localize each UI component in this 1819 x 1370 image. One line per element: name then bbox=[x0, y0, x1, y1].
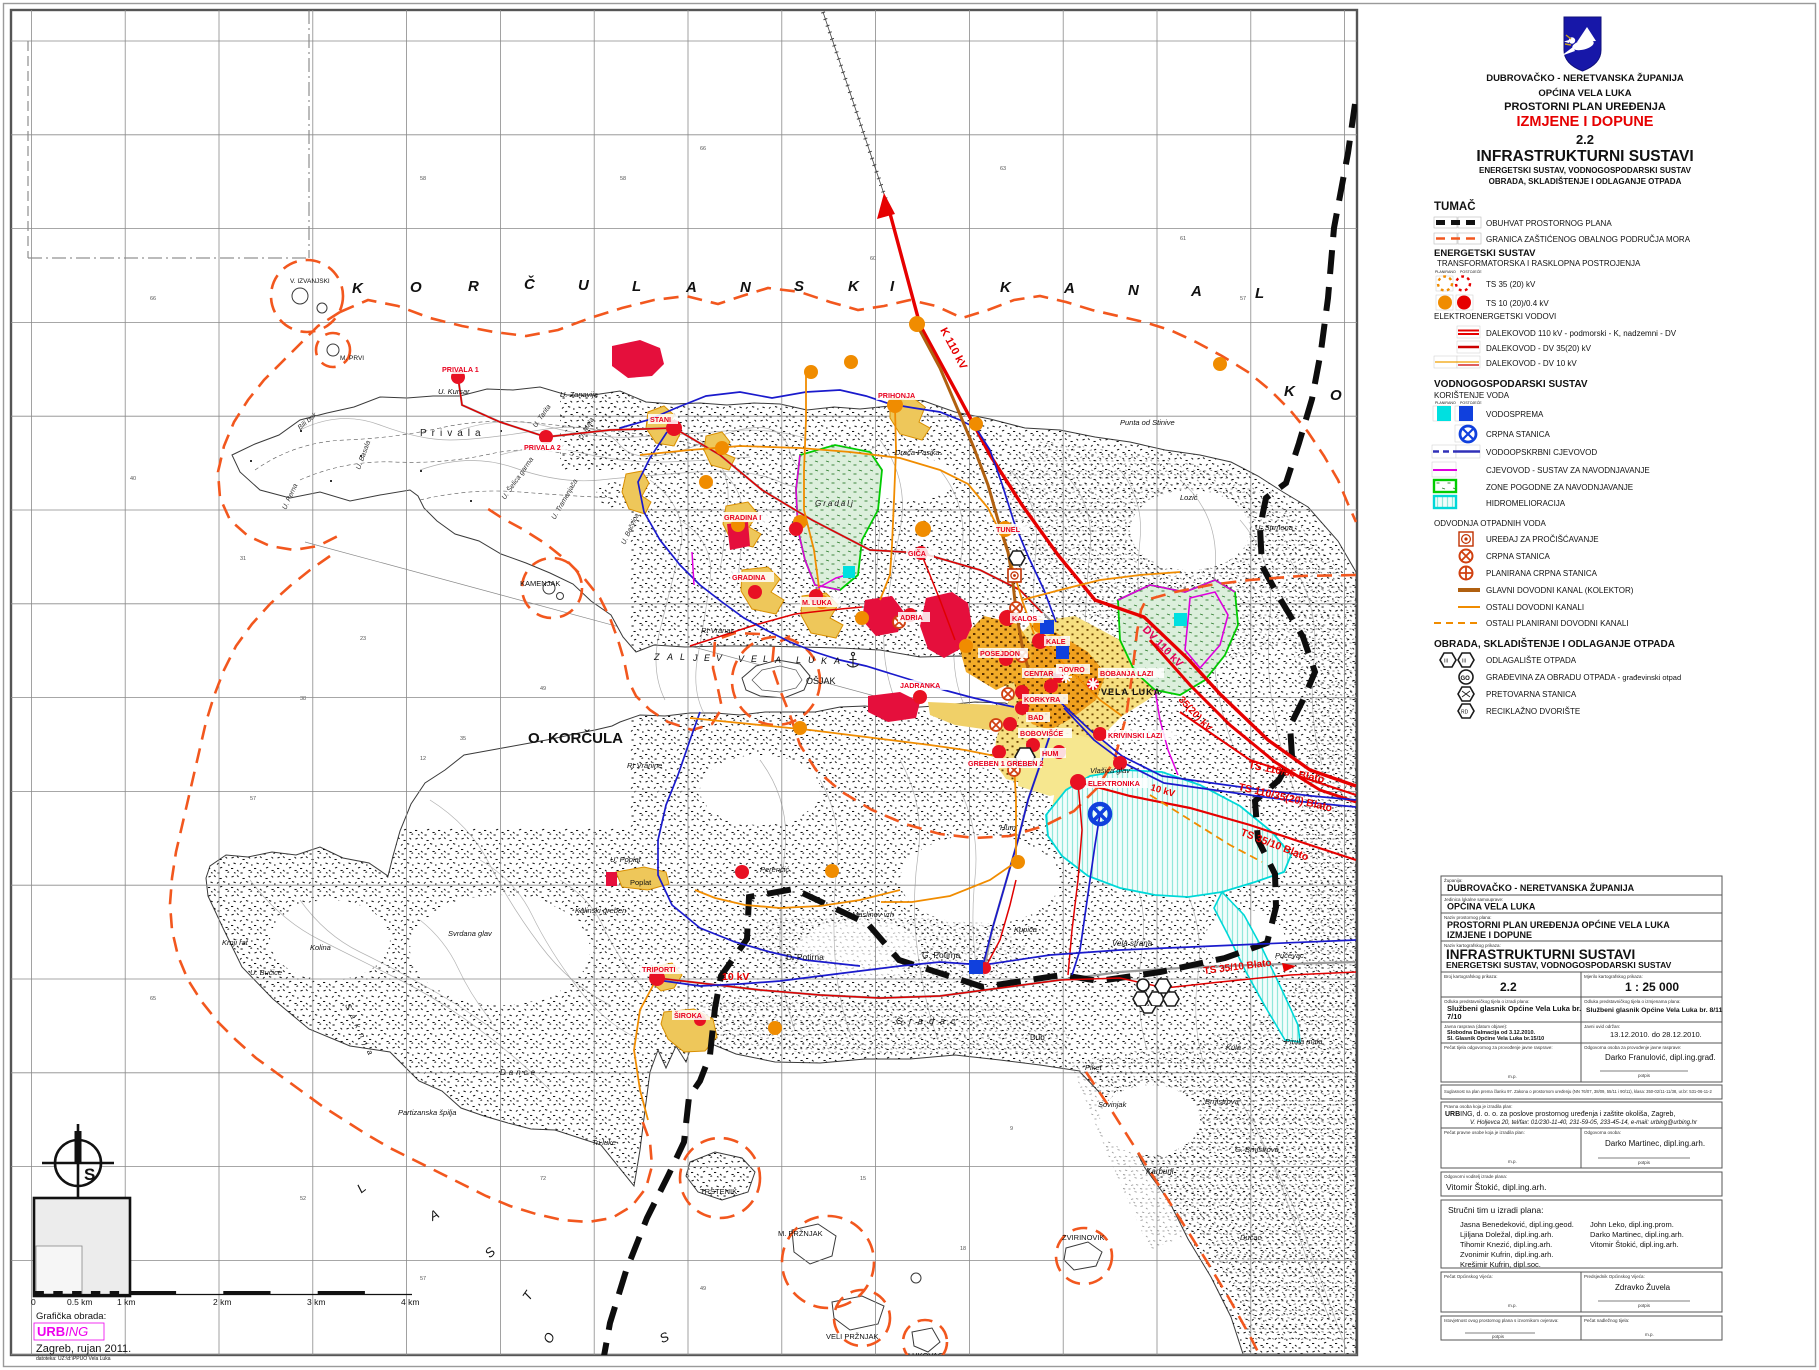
svg-text:A: A bbox=[666, 652, 673, 662]
svg-text:UREĐAJ ZA PROČIŠĆAVANJE: UREĐAJ ZA PROČIŠĆAVANJE bbox=[1486, 535, 1599, 544]
svg-text:m.p.: m.p. bbox=[1508, 1303, 1517, 1308]
svg-text:L: L bbox=[680, 652, 685, 662]
svg-text:Kolina: Kolina bbox=[310, 943, 331, 952]
svg-text:PLANIRANO: PLANIRANO bbox=[1435, 401, 1456, 405]
svg-text:Istovjetnost ovog prostornog p: Istovjetnost ovog prostornog plana s izv… bbox=[1444, 1318, 1559, 1323]
svg-text:BAD: BAD bbox=[1028, 713, 1044, 722]
svg-text:ELEKTRONIKA: ELEKTRONIKA bbox=[1088, 779, 1140, 788]
svg-text:HIDROMELIORACIJA: HIDROMELIORACIJA bbox=[1486, 499, 1566, 508]
svg-text:PLANIRANA CRPNA STANICA: PLANIRANA CRPNA STANICA bbox=[1486, 569, 1598, 578]
svg-text:Zvonimir Kufrin, dipl.ing.arh.: Zvonimir Kufrin, dipl.ing.arh. bbox=[1460, 1250, 1553, 1259]
svg-text:PRIVALA 2: PRIVALA 2 bbox=[524, 443, 561, 452]
svg-text:A: A bbox=[685, 279, 697, 296]
svg-text:Kula: Kula bbox=[1226, 1043, 1241, 1052]
svg-text:III: III bbox=[1462, 659, 1466, 665]
svg-text:TS 10 (20)/0.4 kV: TS 10 (20)/0.4 kV bbox=[1486, 299, 1549, 308]
svg-text:ENERGETSKI SUSTAV, VODNOGOSPOD: ENERGETSKI SUSTAV, VODNOGOSPODARSKI SUST… bbox=[1446, 960, 1672, 970]
svg-text:ELEKTROENERGETSKI VODOVI: ELEKTROENERGETSKI VODOVI bbox=[1434, 312, 1556, 321]
svg-text:0.5 km: 0.5 km bbox=[67, 1297, 93, 1307]
svg-text:66: 66 bbox=[700, 146, 706, 152]
svg-text:ZVIRINOVIK: ZVIRINOVIK bbox=[1062, 1233, 1105, 1242]
svg-text:ZONE POGODNE ZA NAVODNJAVANJE: ZONE POGODNE ZA NAVODNJAVANJE bbox=[1486, 483, 1633, 492]
svg-text:G. Brnistrova: G. Brnistrova bbox=[1235, 1145, 1279, 1154]
svg-text:OPĆINA VELA LUKA: OPĆINA VELA LUKA bbox=[1538, 87, 1631, 99]
svg-text:Dučac: Dučac bbox=[1240, 1233, 1262, 1242]
svg-text:VELI PRŽNJAK: VELI PRŽNJAK bbox=[826, 1332, 879, 1341]
svg-text:KAMENJAK: KAMENJAK bbox=[520, 579, 560, 588]
svg-text:9: 9 bbox=[1010, 1126, 1013, 1132]
svg-text:DALEKOVOD - DV 35(20) kV: DALEKOVOD - DV 35(20) kV bbox=[1486, 344, 1592, 353]
svg-text:PRIVALA 1: PRIVALA 1 bbox=[442, 365, 479, 374]
svg-text:49: 49 bbox=[540, 686, 546, 692]
svg-text:Dub: Dub bbox=[1030, 1033, 1045, 1042]
svg-text:ENERGETSKI SUSTAV: ENERGETSKI SUSTAV bbox=[1434, 248, 1536, 259]
svg-text:OBRADA, SKLADIŠTENJE I ODLAGAN: OBRADA, SKLADIŠTENJE I ODLAGANJE OTPADA bbox=[1434, 637, 1675, 650]
svg-text:N: N bbox=[1128, 282, 1140, 299]
svg-text:ODVODNJA OTPADNIH VODA: ODVODNJA OTPADNIH VODA bbox=[1434, 519, 1547, 528]
svg-text:PRETOVARNA STANICA: PRETOVARNA STANICA bbox=[1486, 690, 1577, 699]
svg-text:Pučevac: Pučevac bbox=[1275, 951, 1304, 960]
svg-text:U. Kursar: U. Kursar bbox=[438, 387, 470, 396]
svg-text:Odluka predstavničkog tijela o: Odluka predstavničkog tijela o izmjenama… bbox=[1584, 999, 1681, 1004]
svg-text:TRSTENIK: TRSTENIK bbox=[700, 1187, 737, 1196]
svg-text:IZMJENE I DOPUNE: IZMJENE I DOPUNE bbox=[1447, 930, 1532, 940]
svg-text:Sl. Glasnik Općine Vela Luka b: Sl. Glasnik Općine Vela Luka br.15/10 bbox=[1447, 1036, 1544, 1042]
svg-text:PROSTORNI PLAN UREĐENJA OPĆINE: PROSTORNI PLAN UREĐENJA OPĆINE VELA LUKA bbox=[1447, 919, 1670, 930]
svg-text:CJEVOVOD - SUSTAV ZA NAVODNJAV: CJEVOVOD - SUSTAV ZA NAVODNJAVANJE bbox=[1486, 466, 1650, 475]
svg-text:KORKYRA: KORKYRA bbox=[1024, 695, 1060, 704]
svg-text:R: R bbox=[468, 278, 479, 295]
svg-text:Rt Vranine: Rt Vranine bbox=[627, 761, 662, 770]
svg-text:potpis: potpis bbox=[1492, 1334, 1505, 1339]
svg-text:Hum: Hum bbox=[1000, 823, 1016, 832]
svg-text:Rt Vranac: Rt Vranac bbox=[701, 626, 734, 635]
svg-text:INFRASTRUKTURNI SUSTAVI: INFRASTRUKTURNI SUSTAVI bbox=[1476, 148, 1693, 165]
svg-text:Krešimir Kufrin, dipl.soc.: Krešimir Kufrin, dipl.soc. bbox=[1460, 1260, 1541, 1269]
svg-text:HUM: HUM bbox=[1042, 749, 1058, 758]
svg-text:7/10: 7/10 bbox=[1447, 1012, 1462, 1021]
svg-text:U: U bbox=[578, 277, 590, 294]
svg-text:A: A bbox=[1063, 280, 1075, 297]
svg-text:Javni uvid održan:: Javni uvid održan: bbox=[1584, 1024, 1620, 1029]
svg-text:1 : 25 000: 1 : 25 000 bbox=[1625, 980, 1679, 994]
svg-text:OSTALI PLANIRANI DOVODNI KANAL: OSTALI PLANIRANI DOVODNI KANALI bbox=[1486, 619, 1629, 628]
svg-text:Kupica: Kupica bbox=[1014, 925, 1037, 934]
svg-text:13.12.2010. do 28.12.2010.: 13.12.2010. do 28.12.2010. bbox=[1610, 1030, 1702, 1039]
svg-text:DALEKOVOD - DV 10 kV: DALEKOVOD - DV 10 kV bbox=[1486, 359, 1577, 368]
svg-text:72: 72 bbox=[540, 1176, 546, 1182]
svg-text:DALEKOVOD 110 kV - podmorski -: DALEKOVOD 110 kV - podmorski - K, nadzem… bbox=[1486, 329, 1677, 338]
svg-text:57: 57 bbox=[250, 796, 256, 802]
svg-text:ŠIROKA: ŠIROKA bbox=[674, 1011, 702, 1020]
svg-text:12: 12 bbox=[420, 756, 426, 762]
svg-text:ODLAGALIŠTE OTPADA: ODLAGALIŠTE OTPADA bbox=[1486, 656, 1577, 665]
svg-text:63: 63 bbox=[1000, 166, 1006, 172]
svg-text:RD: RD bbox=[1461, 710, 1469, 716]
svg-text:POSTOJEĆE: POSTOJEĆE bbox=[1460, 269, 1482, 274]
svg-text:4 km: 4 km bbox=[401, 1297, 419, 1307]
svg-text:0: 0 bbox=[31, 1297, 36, 1307]
svg-text:15: 15 bbox=[860, 1176, 866, 1182]
svg-text:L: L bbox=[1255, 285, 1264, 302]
svg-text:V. Holjevca 20, tel/fax: 01/23: V. Holjevca 20, tel/fax: 01/230-11-40, 2… bbox=[1470, 1120, 1698, 1126]
svg-text:Drača Pasika: Drača Pasika bbox=[895, 448, 940, 457]
svg-text:Tihomir Knezić, dipl.ing.arh.: Tihomir Knezić, dipl.ing.arh. bbox=[1460, 1240, 1552, 1249]
svg-text:JADRANKA: JADRANKA bbox=[900, 681, 940, 690]
svg-text:OBRADA, SKLADIŠTENJE I ODLAGAN: OBRADA, SKLADIŠTENJE I ODLAGANJE OTPADA bbox=[1489, 177, 1682, 186]
svg-text:Vlašica glav: Vlašica glav bbox=[1090, 766, 1131, 775]
svg-text:VODNOGOSPODARSKI SUSTAV: VODNOGOSPODARSKI SUSTAV bbox=[1434, 379, 1588, 390]
svg-text:m.p.: m.p. bbox=[1508, 1074, 1517, 1079]
svg-text:Ljiljana Doležal, dipl.ing.arh: Ljiljana Doležal, dipl.ing.arh. bbox=[1460, 1230, 1553, 1239]
svg-text:57: 57 bbox=[420, 1276, 426, 1282]
svg-text:Sovinjak: Sovinjak bbox=[1098, 1100, 1128, 1109]
svg-text:BOBANJA LAZI: BOBANJA LAZI bbox=[1100, 669, 1153, 678]
svg-text:O. KORČULA: O. KORČULA bbox=[528, 729, 623, 747]
svg-text:Karbuni: Karbuni bbox=[1146, 1167, 1174, 1176]
svg-text:A: A bbox=[774, 655, 781, 665]
svg-text:57: 57 bbox=[1240, 296, 1246, 302]
svg-text:Odgovorna osoba za provođenje: Odgovorna osoba za provođenje javne rasp… bbox=[1584, 1045, 1681, 1050]
svg-text:L: L bbox=[796, 655, 801, 665]
svg-text:IZMJENE I DOPUNE: IZMJENE I DOPUNE bbox=[1517, 114, 1654, 130]
svg-text:Pravna osoba koja je izradila: Pravna osoba koja je izradila plan: bbox=[1444, 1104, 1513, 1109]
svg-text:23: 23 bbox=[360, 636, 366, 642]
svg-text:GREBEN 1 GREBEN 2: GREBEN 1 GREBEN 2 bbox=[968, 759, 1044, 768]
svg-text:OBUHVAT PROSTORNOG PLANA: OBUHVAT PROSTORNOG PLANA bbox=[1486, 219, 1612, 228]
svg-text:35: 35 bbox=[460, 736, 466, 742]
svg-text:Vitomir Štokić, dipl.ing.arh.: Vitomir Štokić, dipl.ing.arh. bbox=[1446, 1182, 1546, 1192]
svg-text:L: L bbox=[763, 654, 768, 664]
svg-text:M. PRŽNJAK: M. PRŽNJAK bbox=[778, 1229, 823, 1238]
svg-text:Gradalj: Gradalj bbox=[815, 499, 855, 508]
svg-text:U. Strmena: U. Strmena bbox=[1255, 523, 1293, 532]
svg-text:Punta od Stinive: Punta od Stinive bbox=[1120, 418, 1175, 427]
svg-text:STANI: STANI bbox=[650, 415, 671, 424]
svg-text:Lozić: Lozić bbox=[1180, 493, 1198, 502]
svg-text:m.p.: m.p. bbox=[1508, 1159, 1517, 1164]
svg-text:58: 58 bbox=[420, 176, 426, 182]
svg-text:49: 49 bbox=[700, 1286, 706, 1292]
svg-text:Dance: Dance bbox=[500, 1068, 538, 1077]
svg-text:GRANICA ZAŠTIĆENOG OBALNOG POD: GRANICA ZAŠTIĆENOG OBALNOG PODRUČJA MORA bbox=[1486, 235, 1691, 244]
svg-text:31: 31 bbox=[240, 556, 246, 562]
svg-text:J: J bbox=[692, 653, 698, 663]
svg-text:Č: Č bbox=[524, 275, 536, 293]
svg-text:Darko Franulović, dipl.ing.gra: Darko Franulović, dipl.ing.građ. bbox=[1605, 1053, 1716, 1062]
svg-text:K: K bbox=[821, 656, 828, 666]
svg-text:66: 66 bbox=[150, 296, 156, 302]
svg-text:PRIHONJA: PRIHONJA bbox=[878, 391, 915, 400]
svg-text:3 km: 3 km bbox=[307, 1297, 325, 1307]
svg-text:N: N bbox=[740, 279, 752, 296]
svg-text:Poplat: Poplat bbox=[630, 878, 652, 887]
svg-text:U. Zanavija: U. Zanavija bbox=[560, 390, 598, 399]
svg-text:PROSTORNI PLAN UREĐENJA: PROSTORNI PLAN UREĐENJA bbox=[1504, 101, 1666, 113]
svg-text:KRIVINSKI LAZI: KRIVINSKI LAZI bbox=[1108, 731, 1162, 740]
svg-text:III: III bbox=[1444, 659, 1448, 665]
svg-text:CRPNA STANICA: CRPNA STANICA bbox=[1486, 552, 1551, 561]
svg-text:D. Potirna: D. Potirna bbox=[786, 952, 824, 962]
svg-text:Krnji rat: Krnji rat bbox=[222, 938, 249, 947]
svg-text:M. PRVI: M. PRVI bbox=[340, 355, 364, 362]
svg-text:URBING, d. o. o. za poslove pr: URBING, d. o. o. za poslove prostornog u… bbox=[1445, 1111, 1675, 1118]
svg-text:Svrdana glav: Svrdana glav bbox=[448, 929, 493, 938]
svg-text:DUBROVAČKO - NERETVANSKA ŽUPAN: DUBROVAČKO - NERETVANSKA ŽUPANIJA bbox=[1486, 72, 1684, 84]
svg-text:Brnistrova: Brnistrova bbox=[1205, 1097, 1239, 1106]
svg-text:POSTOJEĆE: POSTOJEĆE bbox=[1460, 400, 1482, 405]
svg-text:10 kV: 10 kV bbox=[722, 971, 749, 983]
svg-text:potpis: potpis bbox=[1638, 1073, 1651, 1078]
svg-text:A: A bbox=[1190, 283, 1202, 300]
svg-text:Broj kartografskog prikaza:: Broj kartografskog prikaza: bbox=[1444, 974, 1498, 979]
svg-text:A: A bbox=[833, 656, 840, 666]
svg-text:OSTALI DOVODNI KANALI: OSTALI DOVODNI KANALI bbox=[1486, 603, 1584, 612]
svg-text:John Leko, dipl.ing.prom.: John Leko, dipl.ing.prom. bbox=[1590, 1220, 1674, 1229]
svg-text:M. LUKA: M. LUKA bbox=[802, 598, 832, 607]
svg-text:K: K bbox=[1284, 383, 1296, 400]
svg-text:18: 18 bbox=[960, 1246, 966, 1252]
svg-text:OPĆINA VELA LUKA: OPĆINA VELA LUKA bbox=[1447, 901, 1536, 912]
svg-text:GOVRO: GOVRO bbox=[1058, 665, 1085, 674]
svg-text:Gradac: Gradac bbox=[896, 1016, 962, 1026]
svg-text:Županija:: Županija: bbox=[1444, 876, 1463, 883]
svg-text:TUNEL: TUNEL bbox=[996, 525, 1021, 534]
svg-text:Mjerilo kartografskog prikaza:: Mjerilo kartografskog prikaza: bbox=[1584, 974, 1643, 979]
svg-text:E: E bbox=[751, 654, 758, 664]
svg-text:K: K bbox=[848, 278, 860, 295]
svg-text:61: 61 bbox=[1180, 236, 1186, 242]
svg-text:ENERGETSKI SUSTAV, VODNOGOSPOD: ENERGETSKI SUSTAV, VODNOGOSPODARSKI SUST… bbox=[1479, 166, 1692, 175]
svg-text:GO: GO bbox=[1461, 676, 1471, 682]
svg-text:PLANIRANO: PLANIRANO bbox=[1435, 270, 1456, 274]
svg-text:58: 58 bbox=[620, 176, 626, 182]
svg-text:TRIPORTI: TRIPORTI bbox=[642, 965, 676, 974]
svg-text:BOBOVIŠĆE: BOBOVIŠĆE bbox=[1020, 729, 1063, 738]
svg-text:Službeni glasnik Općine Vela L: Službeni glasnik Općine Vela Luka br. 8/… bbox=[1586, 1007, 1723, 1014]
svg-text:KALOS: KALOS bbox=[1012, 614, 1037, 623]
svg-text:Pečat Općinskog Vijeća:: Pečat Općinskog Vijeća: bbox=[1444, 1274, 1493, 1279]
svg-text:potpis: potpis bbox=[1638, 1303, 1651, 1308]
svg-text:Odgovorni voditelj izrade plan: Odgovorni voditelj izrade plana: bbox=[1444, 1174, 1507, 1179]
svg-text:Grafička obrada:: Grafička obrada: bbox=[36, 1311, 106, 1322]
svg-text:Vitomir Štokić, dipl.ing.arh.: Vitomir Štokić, dipl.ing.arh. bbox=[1590, 1240, 1679, 1249]
svg-text:URBING: URBING bbox=[37, 1324, 88, 1339]
svg-text:U: U bbox=[808, 655, 815, 665]
svg-text:Kalinski greben: Kalinski greben bbox=[575, 906, 626, 915]
svg-text:RECIKLAŽNO DVORIŠTE: RECIKLAŽNO DVORIŠTE bbox=[1486, 707, 1580, 716]
svg-text:Perenčić: Perenčić bbox=[760, 865, 789, 874]
svg-text:Službeni glasnik Općine Vela L: Službeni glasnik Općine Vela Luka br. bbox=[1447, 1004, 1581, 1013]
svg-text:VODOOPSKRBNI CJEVOVOD: VODOOPSKRBNI CJEVOVOD bbox=[1486, 448, 1597, 457]
svg-text:1 km: 1 km bbox=[117, 1297, 135, 1307]
svg-text:V: V bbox=[716, 653, 723, 663]
svg-text:Predsjednik Općinskog Vijeća:: Predsjednik Općinskog Vijeća: bbox=[1584, 1274, 1645, 1279]
svg-text:Vela strana: Vela strana bbox=[1112, 939, 1153, 948]
svg-text:VELA LUKA: VELA LUKA bbox=[1101, 687, 1161, 697]
svg-text:Pirula mala: Pirula mala bbox=[1285, 1037, 1323, 1046]
svg-text:ADRIA: ADRIA bbox=[900, 613, 923, 622]
svg-text:GRADINA I: GRADINA I bbox=[724, 513, 761, 522]
svg-text:2 km: 2 km bbox=[213, 1297, 231, 1307]
svg-text:Privala: Privala bbox=[420, 428, 486, 439]
svg-text:CRPNA STANICA: CRPNA STANICA bbox=[1486, 430, 1551, 439]
svg-text:E: E bbox=[704, 653, 711, 663]
svg-text:Jasna Benedeković, dipl.ing.ge: Jasna Benedeković, dipl.ing.geod. bbox=[1460, 1220, 1574, 1229]
svg-text:KALE: KALE bbox=[1046, 637, 1066, 646]
svg-text:Zagreb, rujan 2011.: Zagreb, rujan 2011. bbox=[36, 1343, 131, 1355]
svg-text:38: 38 bbox=[300, 696, 306, 702]
svg-text:TUMAČ: TUMAČ bbox=[1434, 200, 1476, 213]
svg-text:G. Potirna: G. Potirna bbox=[922, 950, 961, 960]
svg-text:S: S bbox=[84, 1165, 95, 1184]
svg-text:OŠJAK: OŠJAK bbox=[806, 676, 836, 686]
svg-text:Darko Martinec, dipl.ing.arh.: Darko Martinec, dipl.ing.arh. bbox=[1605, 1139, 1705, 1148]
svg-text:65: 65 bbox=[150, 996, 156, 1002]
svg-text:GIČA: GIČA bbox=[908, 549, 926, 558]
svg-text:40: 40 bbox=[130, 476, 136, 482]
svg-text:Z: Z bbox=[653, 652, 660, 662]
svg-text:Zdravko Žuvela: Zdravko Žuvela bbox=[1615, 1283, 1671, 1292]
svg-text:K: K bbox=[352, 280, 364, 297]
svg-text:U. Poplat: U. Poplat bbox=[610, 855, 642, 864]
svg-text:Pečat pravne osobe koja je izr: Pečat pravne osobe koja je izradila plan… bbox=[1444, 1130, 1525, 1135]
svg-text:Odgovorna osoba:: Odgovorna osoba: bbox=[1584, 1130, 1621, 1135]
svg-text:Suglasnost na plan prema člank: Suglasnost na plan prema članku 97. Zako… bbox=[1444, 1089, 1712, 1094]
svg-text:Javna rasprava (datum objave):: Javna rasprava (datum objave): bbox=[1444, 1024, 1507, 1029]
svg-text:GRAĐEVINA ZA OBRADU OTPADA - g: GRAĐEVINA ZA OBRADU OTPADA - građevinski… bbox=[1486, 673, 1681, 682]
svg-text:L: L bbox=[632, 278, 641, 295]
svg-text:m.p.: m.p. bbox=[1645, 1332, 1654, 1337]
svg-text:KORIŠTENJE VODA: KORIŠTENJE VODA bbox=[1434, 391, 1510, 400]
svg-text:Pečat nadležnog tijela:: Pečat nadležnog tijela: bbox=[1584, 1318, 1629, 1323]
svg-text:TS 35 (20) kV: TS 35 (20) kV bbox=[1486, 280, 1536, 289]
svg-text:TRANSFORMATORSKA I RASKLOPNA P: TRANSFORMATORSKA I RASKLOPNA POSTROJENJA bbox=[1437, 259, 1641, 268]
svg-text:2.2: 2.2 bbox=[1576, 132, 1594, 147]
svg-text:V: V bbox=[738, 654, 745, 664]
svg-text:GLAVNI DOVODNI KANAL (KOLEKTOR: GLAVNI DOVODNI KANAL (KOLEKTOR) bbox=[1486, 586, 1634, 595]
svg-text:datoteka: UZ:\d:\PPUO Vela Luk: datoteka: UZ:\d:\PPUO Vela Luka bbox=[36, 1356, 111, 1362]
svg-text:Stručni tim u izradi plana:: Stručni tim u izradi plana: bbox=[1448, 1205, 1543, 1215]
svg-text:52: 52 bbox=[300, 1196, 306, 1202]
svg-text:U. Bučice: U. Bučice bbox=[250, 968, 282, 977]
svg-text:GRADINA: GRADINA bbox=[732, 573, 766, 582]
svg-text:POSEJDON: POSEJDON bbox=[980, 649, 1020, 658]
svg-text:V. IZVANJSKI: V. IZVANJSKI bbox=[290, 278, 330, 285]
svg-text:O: O bbox=[410, 279, 422, 296]
svg-text:Maslinov vrh: Maslinov vrh bbox=[852, 910, 894, 919]
svg-text:K: K bbox=[1000, 279, 1012, 296]
svg-text:Partizanska špilja: Partizanska špilja bbox=[398, 1108, 456, 1117]
svg-text:S: S bbox=[794, 278, 804, 295]
svg-text:DUBROVAČKO - NERETVANSKA ŽUPAN: DUBROVAČKO - NERETVANSKA ŽUPANIJA bbox=[1447, 882, 1635, 893]
svg-text:Pečat tijela odgovornog za pro: Pečat tijela odgovornog za provođenje ja… bbox=[1444, 1045, 1553, 1050]
svg-text:potpis: potpis bbox=[1638, 1160, 1651, 1165]
svg-text:2.2: 2.2 bbox=[1500, 980, 1517, 994]
svg-text:VODOSPREMA: VODOSPREMA bbox=[1486, 410, 1544, 419]
svg-text:Piket: Piket bbox=[1085, 1063, 1103, 1072]
svg-text:Tri luke: Tri luke bbox=[592, 1138, 616, 1147]
svg-text:O: O bbox=[1330, 387, 1342, 404]
svg-text:CENTAR: CENTAR bbox=[1024, 669, 1054, 678]
svg-text:Darko Martinec, dipl.ing.arh.: Darko Martinec, dipl.ing.arh. bbox=[1590, 1230, 1684, 1239]
